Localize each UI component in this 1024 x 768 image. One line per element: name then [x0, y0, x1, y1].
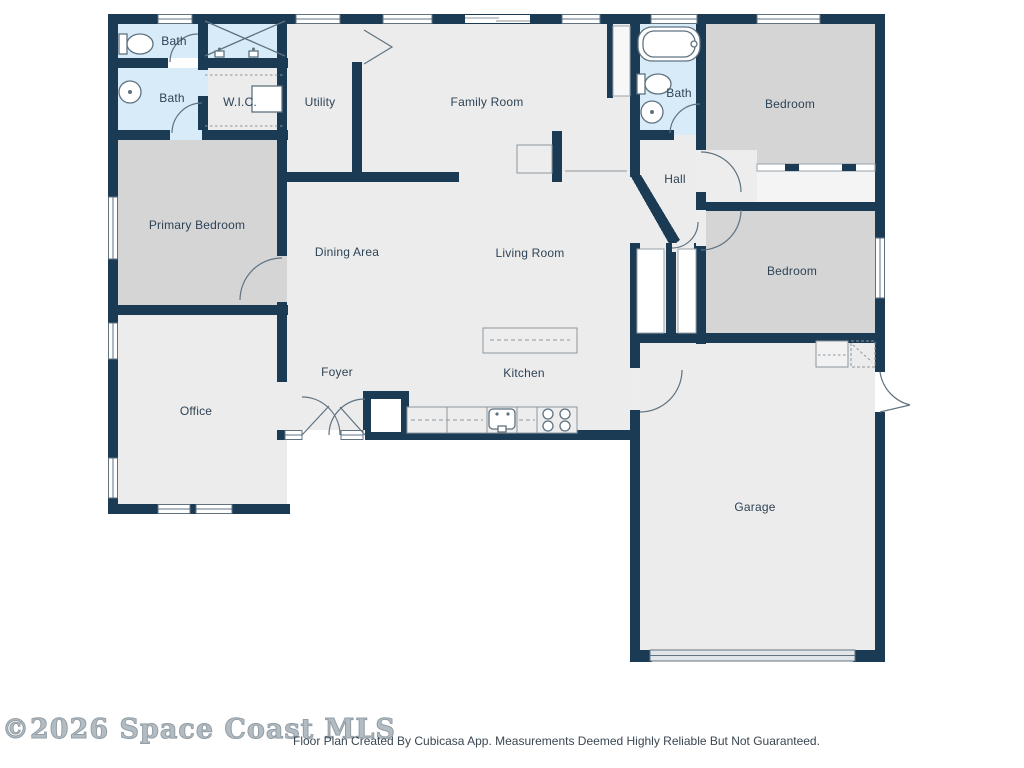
room-label-primary-bedroom: Primary Bedroom [149, 218, 245, 232]
fireplace [517, 145, 552, 173]
window-symbol [109, 323, 118, 359]
window-symbol [296, 15, 340, 24]
window-symbol [158, 15, 192, 24]
round-sink-icon [641, 101, 663, 123]
room-label-bath-right: Bath [666, 86, 692, 100]
family-room-niche [613, 26, 630, 96]
floor-plan-drawing [0, 0, 1024, 768]
room-label-bedroom-top: Bedroom [765, 97, 815, 111]
window-symbol [757, 15, 820, 24]
front-door-sidelight [285, 431, 302, 440]
room-label-foyer: Foyer [321, 365, 353, 379]
room-label-bath-top-left: Bath [161, 34, 187, 48]
room-label-utility: Utility [305, 95, 336, 109]
room-label-hall: Hall [664, 172, 685, 186]
room-label-bath-left: Bath [159, 91, 185, 105]
round-sink-icon [119, 81, 141, 103]
disclaimer-text: Floor Plan Created By Cubicasa App. Meas… [293, 734, 820, 748]
window-symbol [196, 505, 232, 514]
window-symbol [158, 505, 190, 514]
window-symbol [651, 15, 697, 24]
floor-plan-page: Bath Bath W.I.C. Utility Family Room Bat… [0, 0, 1024, 768]
room-label-walk-in-closet: W.I.C. [223, 95, 257, 109]
room-label-bedroom-right: Bedroom [767, 264, 817, 278]
window-symbol [876, 238, 885, 298]
room-label-dining-area: Dining Area [315, 245, 379, 259]
room-label-office: Office [180, 404, 212, 418]
bedroom-closet-sliding [757, 164, 875, 171]
front-door-sill [341, 431, 363, 440]
room-label-living-room: Living Room [496, 246, 565, 260]
toilet-icon [119, 34, 153, 54]
kitchen-sink-icon [489, 409, 515, 432]
garage-door-symbol [650, 650, 855, 661]
room-label-garage: Garage [734, 500, 775, 514]
window-symbol [109, 458, 118, 498]
window-symbol [383, 15, 432, 24]
sliding-door-symbol [465, 15, 530, 23]
room-label-family-room: Family Room [451, 95, 524, 109]
kitchen-island [483, 328, 577, 353]
bathtub-icon [638, 27, 700, 61]
room-label-kitchen: Kitchen [503, 366, 544, 380]
window-symbol [109, 197, 118, 259]
window-symbol [562, 15, 600, 24]
